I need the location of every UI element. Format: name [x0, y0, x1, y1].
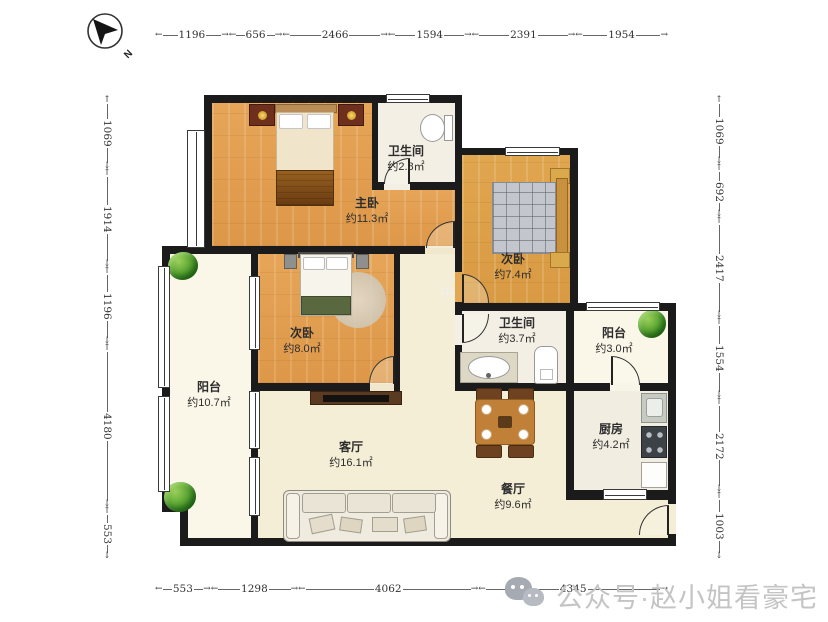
dim-segment: 1594 [388, 27, 472, 43]
room-label-master: 主卧 约11.3㎡ [346, 196, 389, 226]
tv [323, 395, 389, 402]
hallway [400, 254, 455, 391]
dim-segment: 1069 [710, 97, 728, 165]
balcony-sliding-door [249, 391, 260, 449]
chair [476, 445, 502, 458]
dim-segment: 4062 [298, 581, 478, 597]
throw-pillow [339, 517, 363, 534]
room-label-bathroom-mid: 卫生间 约3.7㎡ [498, 316, 535, 346]
dim-segment: 2417 [710, 218, 728, 319]
wall [204, 95, 212, 254]
toilet [420, 112, 454, 144]
nightstand [338, 104, 364, 126]
bay-window [187, 130, 205, 248]
chair [508, 445, 534, 458]
dim-segment: 1196 [98, 268, 116, 345]
window [158, 396, 170, 492]
sofa-back-cushion [347, 493, 391, 513]
sofa [283, 490, 451, 542]
room-label-bathroom-top: 卫生间 约2.8㎡ [387, 144, 424, 174]
center-watermark: 中 [440, 282, 455, 303]
window [586, 302, 660, 311]
bed-master [275, 104, 337, 206]
throw-pillow [403, 516, 427, 534]
kitchen-sliding-door [603, 489, 647, 500]
dim-segment: 4180 [98, 345, 116, 508]
water-heater [534, 346, 558, 384]
compass-north-icon: N [83, 10, 129, 56]
plate [481, 404, 492, 415]
room-balcony-large-lower [188, 504, 251, 538]
sink-basin [646, 398, 663, 417]
nightstand [249, 104, 275, 126]
plate [481, 429, 492, 440]
toilet-tank [444, 115, 453, 141]
window [505, 147, 560, 156]
kitchen-cabinet [641, 462, 667, 488]
faucet-icon [486, 373, 491, 378]
blanket [276, 170, 334, 206]
wall [455, 95, 462, 155]
wechat-icon [505, 577, 547, 613]
door-gap [455, 315, 462, 345]
heater-panel [540, 369, 553, 380]
sofa-back-cushion [302, 493, 346, 513]
dim-segment: 2172 [710, 399, 728, 494]
dim-segment: 656 [229, 27, 283, 43]
throw-pillow [372, 517, 398, 532]
throw-pillow [309, 514, 336, 535]
dim-segment: 692 [710, 165, 728, 218]
room-label-balcony-small: 阳台 约3.0㎡ [595, 326, 632, 356]
dim-segment: 1003 [710, 493, 728, 560]
dim-segment: 1914 [98, 170, 116, 268]
wall [566, 303, 574, 391]
pillow [279, 114, 303, 129]
door-gap [370, 383, 394, 391]
dim-segment: 553 [98, 508, 116, 560]
dim-segment: 1554 [710, 319, 728, 399]
nightstand [356, 254, 369, 269]
dim-segment: 2391 [472, 27, 576, 43]
bed-secondary-left [284, 252, 370, 320]
dim-segment: 2466 [282, 27, 388, 43]
door-gap [455, 272, 462, 302]
door-gap [668, 504, 676, 534]
compass-n-label: N [122, 48, 135, 61]
room-label-dining: 餐厅 约9.6㎡ [494, 482, 531, 512]
table-centerpiece [498, 416, 512, 428]
plate [518, 429, 529, 440]
bed-frame [556, 178, 568, 258]
room-label-bedroom-right: 次卧 约7.4㎡ [494, 252, 531, 282]
toilet-bowl [420, 114, 445, 142]
sofa-back-cushion [392, 493, 436, 513]
watermark-text: 公众号·赵小姐看豪宅 [556, 576, 818, 615]
room-balcony-large [170, 254, 251, 504]
dimension-chain-left: 1069 1914 1196 4180 553 [98, 97, 116, 560]
wall [372, 95, 378, 190]
blanket [301, 296, 351, 315]
nightstand [284, 254, 297, 269]
dim-segment: 1196 [155, 27, 229, 43]
dim-segment: 1298 [211, 581, 298, 597]
room-label-balcony-large: 阳台 约10.7㎡ [187, 380, 230, 410]
pillow [326, 257, 348, 270]
dim-segment: 1069 [98, 97, 116, 170]
sofa-armrest [434, 493, 448, 539]
watermark: 公众号·赵小姐看豪宅 [505, 574, 818, 616]
dining-set [474, 388, 538, 458]
dim-segment: 1954 [575, 27, 668, 43]
room-label-kitchen: 厨房 约4.2㎡ [592, 422, 629, 452]
window [249, 276, 260, 350]
compass-circle [83, 10, 129, 56]
window [158, 266, 170, 388]
wall [566, 383, 574, 500]
pillow [307, 114, 331, 129]
sofa-armrest [286, 493, 300, 539]
blanket [492, 182, 556, 254]
plate [518, 404, 529, 415]
room-label-bedroom-left: 次卧 约8.0㎡ [283, 326, 320, 356]
tv-cabinet [310, 391, 402, 405]
dimension-chain-top: 1196 656 2466 1594 2391 1954 [155, 27, 668, 43]
window [386, 94, 430, 103]
lamp-icon [258, 111, 267, 120]
floor-plan-page: N 1196 656 2466 1594 2391 1954 553 1298 … [0, 0, 828, 622]
window [249, 457, 260, 516]
room-label-living: 客厅 约16.1㎡ [329, 440, 372, 470]
dimension-chain-right: 1069 692 2417 1554 2172 1003 [710, 97, 728, 560]
lamp-icon [347, 111, 356, 120]
dim-segment: 553 [155, 581, 211, 597]
bed-post [550, 252, 570, 268]
kitchen-sink [641, 393, 667, 423]
stove [641, 426, 667, 458]
pillow [303, 257, 325, 270]
bathroom-counter [460, 352, 518, 383]
